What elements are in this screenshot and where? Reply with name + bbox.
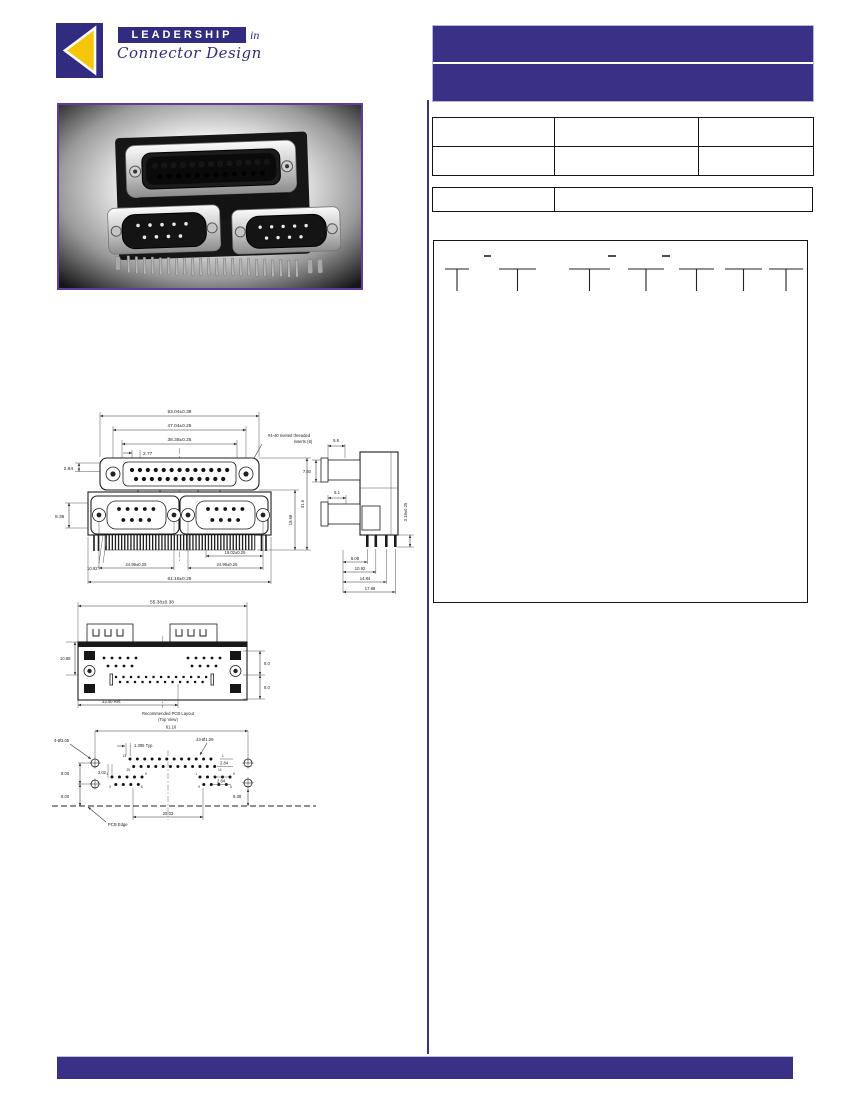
logo-tagline: Connector Design [117,44,262,62]
dim-label: 24.99±0.25 [126,562,148,567]
pin-number: 1 [106,772,108,776]
pin-number: 25 [126,768,130,772]
logo-mark [56,23,103,78]
front-and-side-view-drawing: 53.04±0.38 47.04±0.25 38.38±0.25 2.77 #4… [55,400,427,600]
logo-leadership-text: LEADERSHIP [118,27,246,43]
spec-cell [699,118,814,147]
dim-label: 5.8 [333,438,339,443]
dim-label: 8.38 [233,794,242,799]
secondary-cell [433,188,555,212]
dim-label: 47.04±0.25 [168,423,192,429]
dim-label: 38.38±0.25 [168,437,192,443]
spec-cell [699,147,814,176]
ordering-box [433,240,808,603]
dim-label: 24.99±0.25 [217,562,239,567]
pin-number: 1 [195,772,197,776]
callout-inserts: inserts (6) [294,439,313,444]
dim-label: 6.1 [334,490,340,495]
logo-triangle-icon [56,23,103,78]
pin-number: 5 [145,772,147,776]
dim-label: 8.00 [61,794,70,799]
pin-number: 6 [230,785,232,789]
logo-in-text: in [250,28,259,43]
spec-cell [555,118,699,147]
header-banner-bottom-band [433,64,813,101]
pcb-edge-label: PCB Edge [108,822,128,827]
pcb-title: Recommended PCB Layout [142,711,195,716]
pin-number: 1 [222,754,224,758]
dim-label: 19.02±0.25 [225,550,247,555]
dim-label: 33.40 Ref. [102,699,121,704]
dim-label: 2.84 [64,466,74,472]
dim-label: 10.89 [60,656,71,661]
dim-label: 2.84 [220,761,229,766]
dim-label: 25.03 [163,811,174,816]
header-banner [432,25,814,102]
spec-cell [555,147,699,176]
pin-number: 5 [233,772,235,776]
dim-label: 19.68 [288,514,293,525]
callout-inserts: #4-40 riveted threaded [268,433,311,438]
callout-pin-holes: 43-Ø1.09 [196,737,214,742]
pin-number: 14 [218,768,222,772]
dim-label: 8.0 [264,661,270,666]
spec-cell [433,147,555,176]
pcb-subtitle: (Top View) [158,717,178,722]
product-photo [57,103,363,290]
callout-mounting-holes: 4-Ø3.05 [54,738,70,743]
dim-label: 61.16 [166,725,177,730]
secondary-table [432,187,813,212]
dim-label: 55.38±0.38 [150,600,174,606]
dim-label: 2.84 [217,779,226,784]
dim-label: 8.36 [55,514,65,520]
footer-bar [57,1056,793,1079]
part-number-diagram [434,241,806,311]
dim-label: 31.6 [300,499,305,508]
spec-table [432,117,814,176]
dim-label: 2.77 [143,451,153,457]
pcb-layout-drawing: Recommended PCB Layout (Top View) 61.16 … [50,708,330,843]
side-view: 5.8 7.50 6.1 3.18±0.25 8.08 10.92 14.84 … [303,438,414,594]
header-banner-top-band [433,26,813,62]
dim-label: 8.00 [61,771,70,776]
dim-label: 61.16±0.25 [168,576,192,582]
product-photo-image [59,105,361,288]
dim-label: 8.08 [351,556,360,561]
dim-label: 7.50 [303,469,312,474]
dim-label: 53.04±0.38 [168,409,192,415]
pin-number: 13 [122,754,126,758]
dim-label: 8.0 [264,685,270,690]
dim-label: 10.92° [87,566,99,571]
pin-number: 9 [198,785,200,789]
dim-label: 10.92 [355,566,366,571]
dim-label: 1.385 Typ. [134,743,153,748]
dim-label: 14.84 [360,576,371,581]
secondary-cell [555,188,813,212]
rear-view-drawing: 55.38±0.38 10.89 33.40 Ref. 8.0 8.0 [60,598,310,713]
pin-number: 6 [141,785,143,789]
column-divider [427,100,429,1054]
dim-label: 3.18±0.25 [403,502,408,521]
pin-number: 9 [109,785,111,789]
dim-label: 17.88 [365,586,376,591]
spec-cell [433,118,555,147]
